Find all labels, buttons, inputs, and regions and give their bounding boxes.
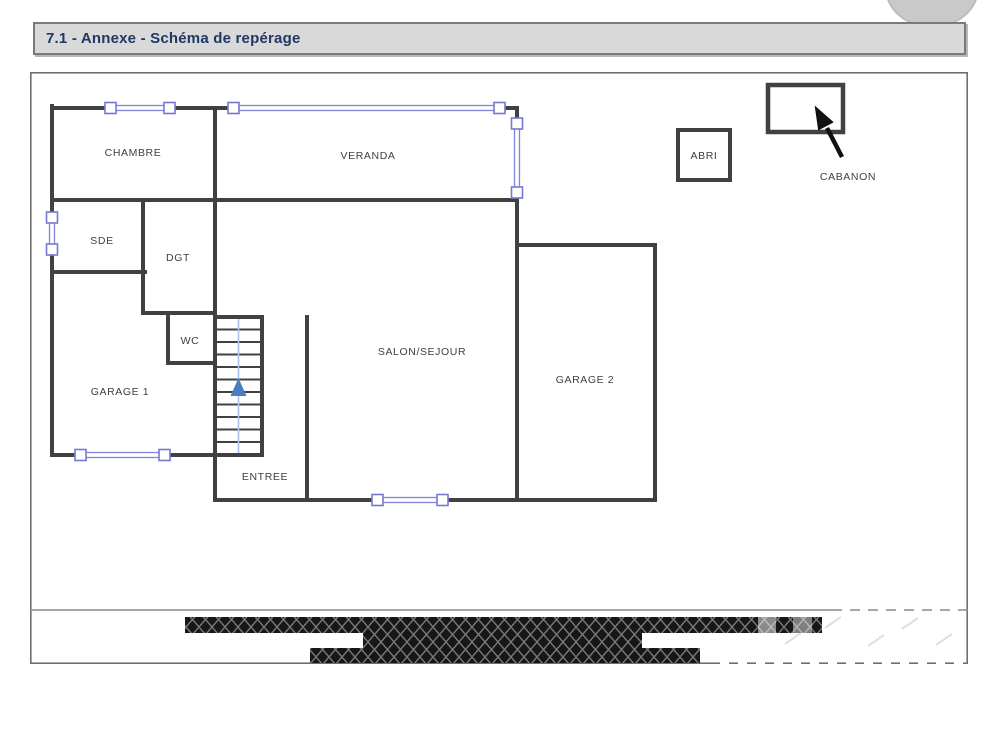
room-label-abri: ABRI bbox=[691, 150, 718, 162]
room-label-veranda: VERANDA bbox=[341, 150, 396, 162]
room-label-entree: ENTREE bbox=[242, 471, 288, 483]
hatch-strip bbox=[310, 648, 700, 663]
room-label-garage2: GARAGE 2 bbox=[556, 374, 614, 386]
hatch-strip bbox=[363, 633, 642, 648]
floorplan-frame: CHAMBRE VERANDA SDE DGT WC GARAGE 1 ENTR… bbox=[30, 72, 968, 664]
room-label-chambre: CHAMBRE bbox=[105, 147, 162, 159]
section-title: 7.1 - Annexe - Schéma de repérage bbox=[35, 30, 300, 47]
room-label-garage1: GARAGE 1 bbox=[91, 386, 149, 398]
room-label-cabanon: CABANON bbox=[820, 171, 876, 183]
room-label-dgt: DGT bbox=[166, 252, 190, 264]
plan-border bbox=[31, 73, 967, 663]
floorplan-drawing: CHAMBRE VERANDA SDE DGT WC GARAGE 1 ENTR… bbox=[30, 72, 968, 664]
room-label-sde: SDE bbox=[90, 235, 113, 247]
section-title-bar: 7.1 - Annexe - Schéma de repérage bbox=[33, 22, 966, 55]
room-label-wc: WC bbox=[181, 335, 200, 347]
hatch-strip bbox=[185, 617, 822, 633]
room-label-salon: SALON/SEJOUR bbox=[378, 346, 466, 358]
